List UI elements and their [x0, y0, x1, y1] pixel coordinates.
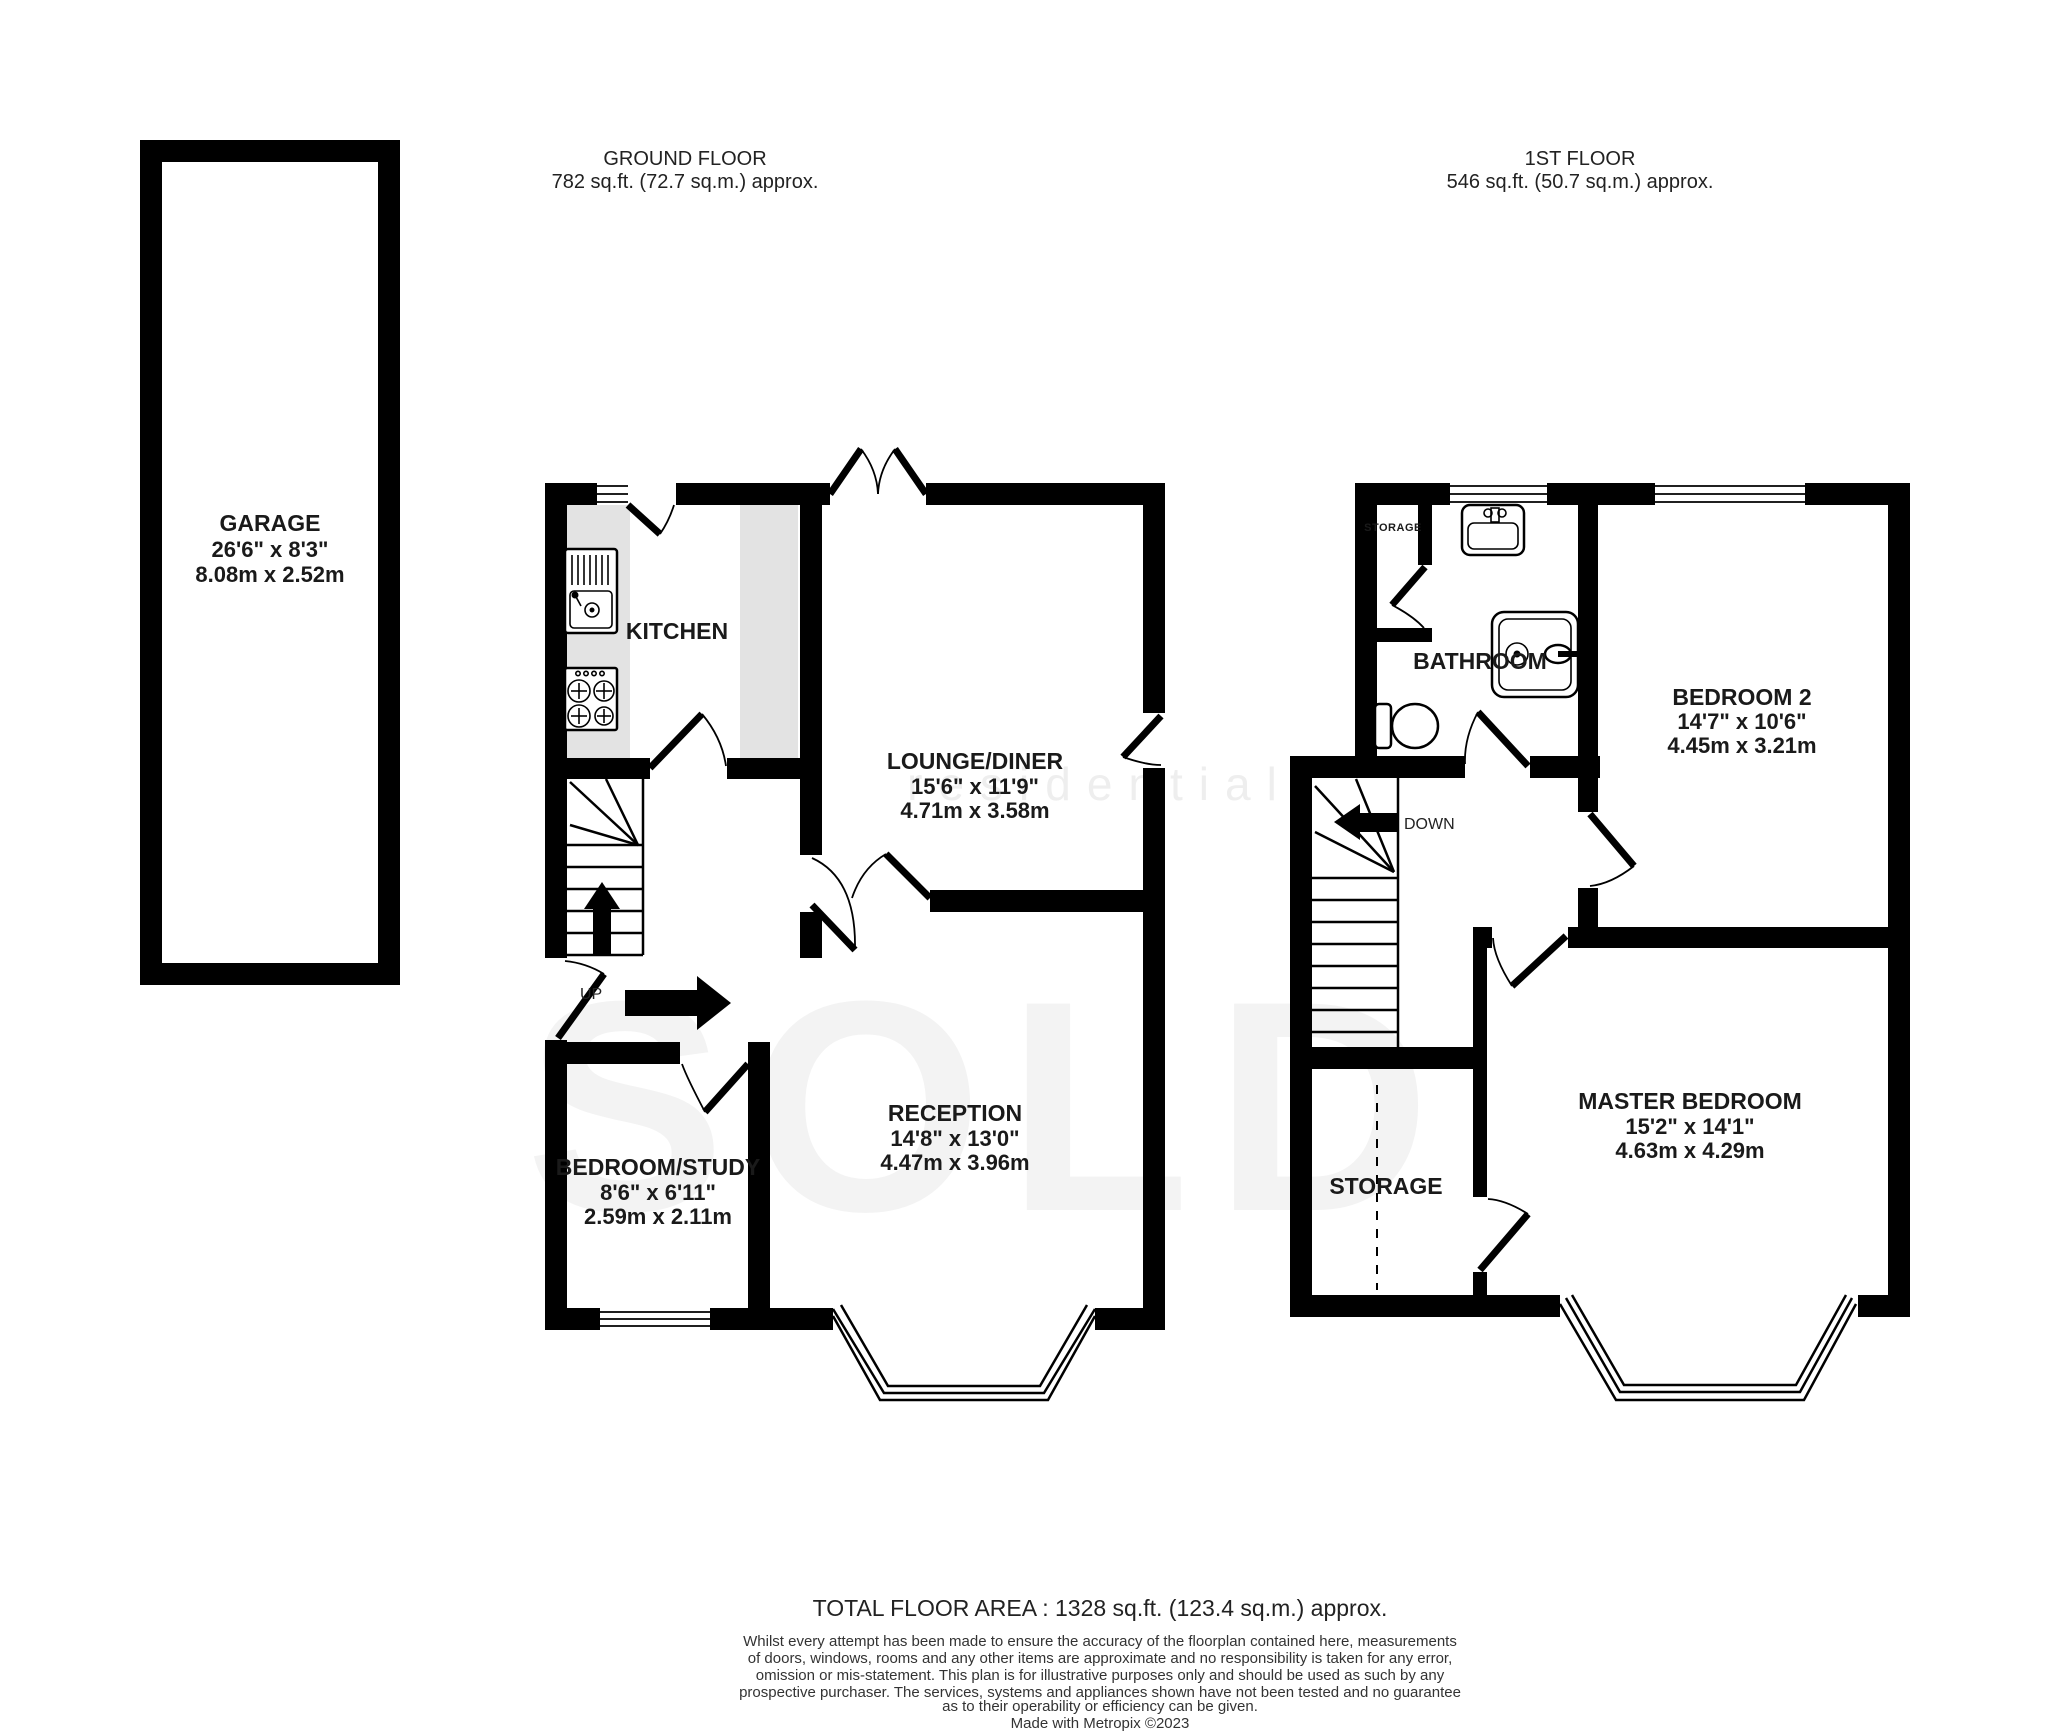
garage-metric: 8.08m x 2.52m: [195, 562, 344, 587]
kitchen-window: [597, 486, 628, 502]
study-metric: 2.59m x 2.11m: [584, 1204, 732, 1229]
master-bay-window: [1560, 1295, 1856, 1400]
master-metric: 4.63m x 4.29m: [1615, 1138, 1764, 1163]
garage-name: GARAGE: [220, 510, 321, 536]
storage-closet-label: STORAGE: [1364, 522, 1422, 534]
storage-closet-door: [1392, 567, 1425, 628]
garage-imperial: 26'6" x 8'3": [212, 537, 329, 562]
disclaimer-line-1: Whilst every attempt has been made to en…: [743, 1633, 1457, 1650]
metropix-credit: Made with Metropix ©2023: [1011, 1715, 1190, 1732]
french-doors: [830, 449, 926, 494]
reception-name: RECEPTION: [888, 1100, 1022, 1126]
disclaimer-line-2: of doors, windows, rooms and any other i…: [748, 1650, 1453, 1667]
bedroom2-imperial: 14'7" x 10'6": [1677, 709, 1806, 734]
sink-icon: [565, 549, 617, 633]
first-floor-area: 546 sq.ft. (50.7 sq.m.) approx.: [1447, 171, 1714, 193]
disclaimer-line-5: as to their operability or efficiency ca…: [942, 1698, 1258, 1715]
master-name: MASTER BEDROOM: [1578, 1088, 1802, 1114]
reception-metric: 4.47m x 3.96m: [880, 1150, 1029, 1175]
bathroom-window: [1450, 486, 1547, 502]
first-floor-title: 1ST FLOOR: [1525, 148, 1636, 170]
hob-icon: [565, 668, 617, 730]
bedroom2-metric: 4.45m x 3.21m: [1667, 733, 1816, 758]
lounge-imperial: 15'6" x 11'9": [911, 774, 1039, 799]
bedroom2-name: BEDROOM 2: [1672, 684, 1811, 710]
study-imperial: 8'6" x 6'11": [600, 1180, 716, 1205]
ground-floor-area: 782 sq.ft. (72.7 sq.m.) approx.: [552, 171, 819, 193]
bathroom-door: [1465, 712, 1528, 766]
disclaimer-line-3: omission or mis-statement. This plan is …: [756, 1667, 1445, 1684]
lounge-metric: 4.71m x 3.58m: [900, 798, 1049, 823]
kitchen-name: KITCHEN: [626, 618, 728, 644]
toilet-icon: [1375, 704, 1438, 748]
reception-bay-window: [833, 1305, 1095, 1400]
bedroom2-window: [1655, 486, 1805, 502]
master-bedroom-door: [1493, 936, 1566, 986]
footer: TOTAL FLOOR AREA : 1328 sq.ft. (123.4 sq…: [739, 1595, 1461, 1732]
lounge-name: LOUNGE/DINER: [887, 748, 1064, 774]
study-name: BEDROOM/STUDY: [556, 1154, 760, 1180]
down-label: DOWN: [1404, 816, 1455, 833]
storage-room-door: [1480, 1199, 1528, 1270]
kitchen-bottom-door: [650, 714, 726, 768]
bathroom-fixtures: [1375, 505, 1590, 748]
floor-headers: GROUND FLOOR 782 sq.ft. (72.7 sq.m.) app…: [552, 148, 1714, 193]
garage: GARAGE 26'6" x 8'3" 8.08m x 2.52m: [140, 140, 400, 985]
reception-imperial: 14'8" x 13'0": [890, 1126, 1019, 1151]
master-imperial: 15'2" x 14'1": [1625, 1114, 1754, 1139]
garage-label: GARAGE 26'6" x 8'3" 8.08m x 2.52m: [195, 510, 344, 587]
lounge-reception-doors: [812, 854, 930, 950]
ground-floor-stairs: UP: [567, 779, 731, 1030]
ground-floor-title: GROUND FLOOR: [603, 148, 766, 170]
basin-icon: [1462, 505, 1524, 555]
kitchen-top-door: [628, 505, 674, 534]
bedroom2-door: [1590, 814, 1634, 886]
study-window: [600, 1308, 710, 1330]
floorplan-canvas: residential SOLD GROUND FLOOR 782 sq.ft.…: [0, 0, 2048, 1732]
down-arrow-icon: [1334, 804, 1398, 840]
bathroom-name: BATHROOM: [1413, 648, 1547, 674]
up-label: UP: [580, 986, 602, 1003]
storage-room-name: STORAGE: [1329, 1173, 1442, 1199]
total-floor-area: TOTAL FLOOR AREA : 1328 sq.ft. (123.4 sq…: [813, 1595, 1388, 1621]
